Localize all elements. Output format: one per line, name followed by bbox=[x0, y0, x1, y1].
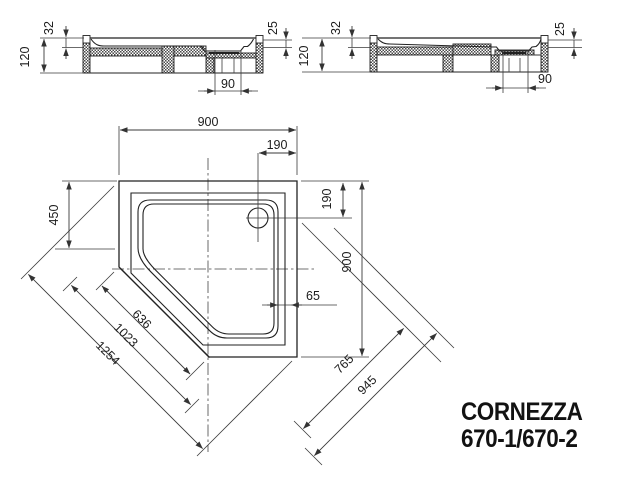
dim-plan-diag-inner: 1023 bbox=[111, 320, 141, 350]
dim-left-height: 120 bbox=[18, 47, 32, 68]
dim-plan-diag-outer: 1254 bbox=[93, 338, 123, 368]
dim-plan-side: 450 bbox=[47, 205, 61, 226]
plan-view: 900 190 450 900 190 65 636 1023 1254 bbox=[21, 115, 454, 465]
product-models: 670-1/670-2 bbox=[461, 426, 582, 453]
dim-plan-drain-y: 190 bbox=[320, 189, 334, 210]
dim-plan-width: 900 bbox=[198, 115, 219, 129]
rim-cap bbox=[83, 36, 90, 44]
dim-left-rim: 32 bbox=[42, 21, 56, 35]
dim-right-height: 120 bbox=[297, 46, 311, 67]
dim-plan-drain-x: 190 bbox=[267, 138, 288, 152]
dim-plan-chamfer: 636 bbox=[130, 307, 155, 332]
title-block: CORNEZZA 670-1/670-2 bbox=[461, 399, 582, 453]
dim-right-rim: 32 bbox=[329, 21, 343, 35]
dim-right-depth: 25 bbox=[553, 22, 567, 36]
dim-plan-cross-inner: 765 bbox=[332, 352, 357, 377]
dim-left-drain: 90 bbox=[221, 77, 235, 91]
dim-right-drain: 90 bbox=[538, 72, 552, 86]
dim-left-depth: 25 bbox=[266, 21, 280, 35]
rim-cap bbox=[370, 36, 377, 44]
section-view-left: 32 120 25 90 bbox=[18, 21, 292, 95]
product-name: CORNEZZA bbox=[461, 399, 582, 426]
rim-cap bbox=[256, 36, 263, 44]
rim-cap bbox=[541, 36, 548, 44]
section-view-right: 32 120 25 90 bbox=[297, 21, 582, 93]
dim-plan-rim-width: 65 bbox=[306, 289, 320, 303]
dim-plan-height: 900 bbox=[340, 252, 354, 273]
